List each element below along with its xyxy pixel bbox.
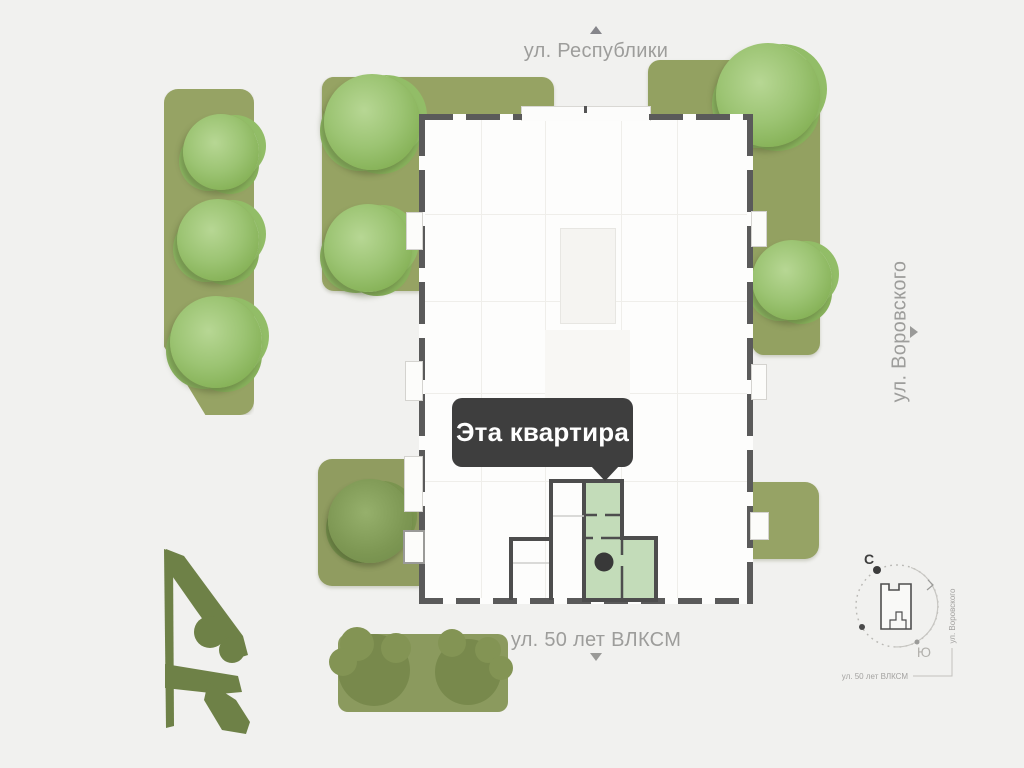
compass-south-label: Ю (917, 644, 931, 660)
apartment-tooltip-label: Эта квартира (456, 417, 629, 448)
compass-dot (859, 624, 865, 630)
site-plan: Эта квартира ул. Республики ул. Воровско… (0, 0, 1024, 768)
street-label-right: ул. Воровского (889, 222, 912, 442)
neighbor-apartment-walls (511, 481, 586, 600)
arrow-down-icon (590, 653, 602, 661)
tooltip-pointer (590, 465, 620, 481)
compass-north-dot (873, 566, 881, 574)
apartment-tooltip: Эта квартира (452, 398, 633, 467)
street-label-top: ул. Республики (496, 40, 696, 63)
street-label-bottom: ул. 50 лет ВЛКСМ (496, 629, 696, 652)
compass-street-right-label: ул. Воровского (948, 588, 957, 644)
apartment-location-dot (595, 553, 614, 572)
highlighted-apartment[interactable] (584, 481, 656, 600)
compass-arc-chevron-icon (927, 580, 933, 590)
arrow-right-icon (910, 326, 918, 338)
compass-street-bottom-label: ул. 50 лет ВЛКСМ (842, 672, 909, 681)
arrow-up-icon (590, 26, 602, 34)
compass-widget: С Ю ул. Воровского ул. 50 лет ВЛКСМ (838, 545, 1024, 695)
compass-north-label: С (864, 551, 874, 567)
